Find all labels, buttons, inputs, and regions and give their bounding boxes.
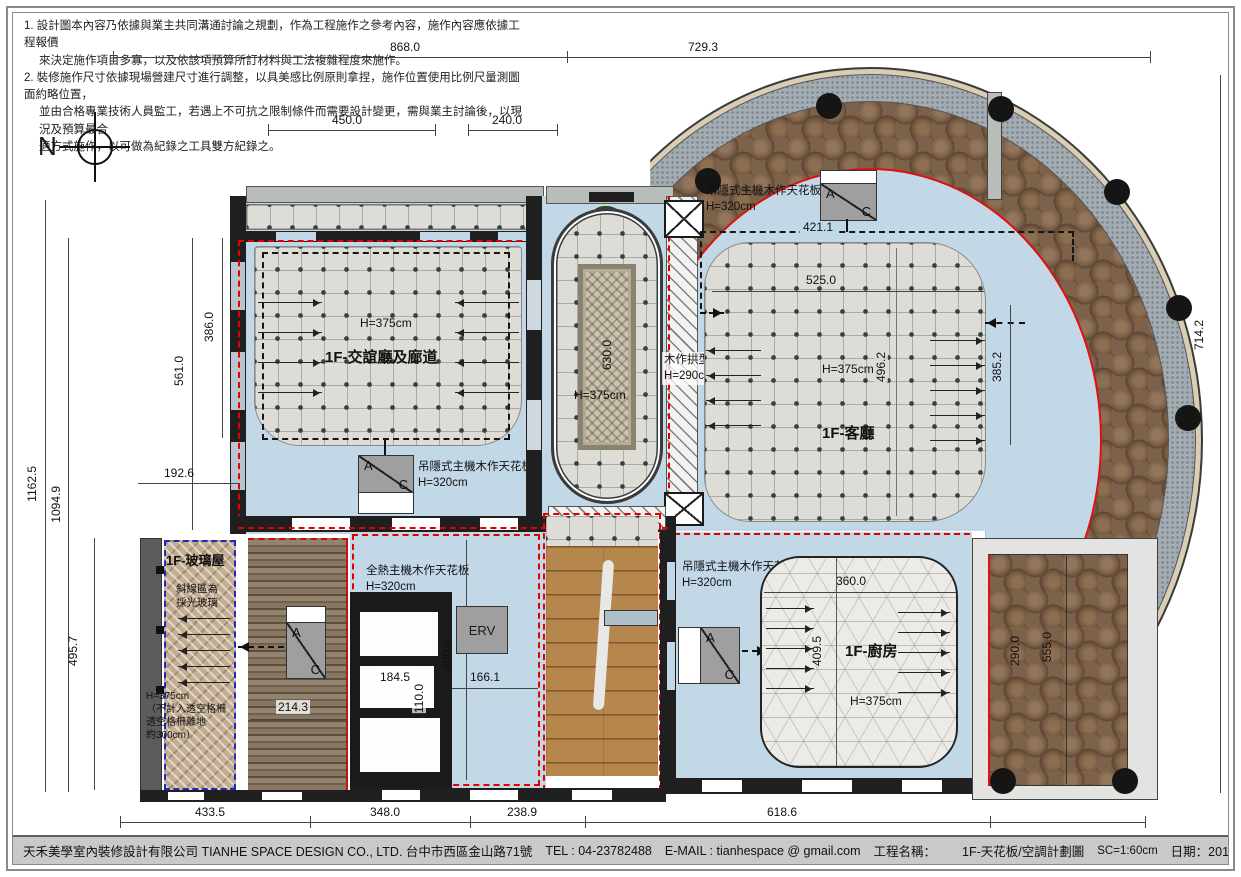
glass-house-name: 1F-玻璃屋	[166, 550, 225, 569]
airflow-arrow	[766, 648, 814, 649]
dimline-1094	[68, 238, 69, 792]
foyer-left-wall	[526, 196, 542, 534]
dim-1094: 1094.9	[49, 486, 63, 523]
airflow-arrow	[898, 692, 950, 693]
ceiling-label: 吊隱式主機木作天花板 H=320cm	[706, 184, 821, 215]
dim-714: 714.2	[1192, 320, 1206, 350]
floor-plan-page: 1. 設計圖本內容乃依據與業主共同溝通討論之規劃，作為工程施作之參考內容，施作內…	[0, 0, 1241, 877]
airflow-arrow	[930, 390, 985, 391]
lounge-ceiling-zone-border	[238, 240, 240, 530]
living-airflow-duct	[1072, 231, 1074, 261]
ac-unit-base	[678, 627, 702, 684]
living-tile-divider	[896, 248, 897, 516]
airflow-arrow	[766, 628, 814, 629]
dim-433: 433.5	[195, 805, 225, 819]
glass-house-room	[164, 540, 236, 790]
airflow-arrow	[178, 666, 230, 667]
dim-500: 500.8	[440, 640, 454, 670]
note-line: 1. 設計圖本內容乃依據與業主共同溝通討論之規劃，作為工程施作之參考內容，施作內…	[24, 18, 529, 53]
dim-166: 166.1	[470, 670, 500, 684]
ac-unit: A C	[358, 455, 414, 494]
airflow-arrow	[258, 302, 322, 303]
dim-tick	[310, 816, 311, 828]
living-room-name: 1F-客廳	[822, 422, 875, 443]
lounge-room-name: 1F-交誼廳及廊道	[325, 346, 438, 367]
round-column	[1112, 768, 1138, 794]
airflow-arrow	[258, 332, 322, 333]
dim-tick	[567, 51, 568, 63]
airflow-arrow	[898, 612, 950, 613]
note-line: 2. 裝修施作尺寸依據現場營建尺寸進行調整，以具美感比例原則拿捏，施作位置使用比…	[24, 70, 529, 105]
round-column	[988, 96, 1014, 122]
dim-496: 496.2	[874, 352, 888, 382]
dimline-495	[94, 538, 95, 790]
lounge-soffit-strip	[246, 204, 544, 230]
small-room-cell	[360, 718, 440, 772]
ac-unit: A C	[820, 183, 877, 221]
dim-729: 729.3	[688, 40, 718, 54]
dim-450: 450.0	[332, 113, 362, 127]
ceiling-label-height: H=320cm	[682, 577, 732, 589]
drawing-title: 1F-天花板/空調計劃圖	[962, 841, 1084, 860]
round-column	[990, 768, 1016, 794]
ceiling-label: 吊隱式主機木作天花板 H=320cm	[418, 460, 533, 491]
window-gap	[382, 790, 420, 800]
glass-hatch-note-1: 斜線區為	[176, 583, 218, 595]
airflow-arrow	[706, 400, 761, 401]
living-tile-ceiling	[704, 242, 986, 522]
airflow-arrow	[178, 650, 230, 651]
ac-unit: A C	[700, 627, 740, 684]
glass-note-3: 約300cm）	[146, 730, 196, 741]
ac-letter-c: C	[862, 204, 871, 219]
column-xbox	[664, 200, 704, 238]
airflow-arrow	[178, 634, 230, 635]
airflow-arrow	[930, 365, 985, 366]
project-name-label: 工程名稱：	[874, 841, 937, 860]
terrace-divider	[1066, 556, 1067, 784]
small-room-cell	[360, 612, 438, 656]
window-gap	[702, 780, 742, 792]
foyer-height-label: H=375cm	[574, 388, 626, 402]
airflow-arrow	[455, 392, 519, 393]
erv-ceiling-label-text: 全熱主機木作天花板	[366, 565, 470, 577]
dim-348: 348.0	[370, 805, 400, 819]
erv-ceiling-label-height: H=320cm	[366, 581, 416, 593]
airflow-arrow	[258, 392, 322, 393]
glass-note-1: （不計入透空格柵	[146, 704, 226, 715]
airflow-arrow	[178, 682, 230, 683]
north-label: N	[38, 131, 57, 162]
dimline-450	[268, 130, 435, 131]
dimline-240	[468, 130, 557, 131]
scale-label: SC=1:60cm	[1097, 845, 1157, 857]
dim-868: 868.0	[390, 40, 420, 54]
window-gap	[262, 792, 302, 800]
ac-letter-c: C	[399, 477, 408, 492]
dim-421: 421.1	[800, 220, 836, 234]
window-gap	[667, 562, 675, 600]
round-column	[1166, 295, 1192, 321]
dim-tick	[990, 816, 991, 828]
airflow-dashed-arrow	[985, 322, 1025, 324]
airflow-arrow	[455, 302, 519, 303]
dim-385: 385.2	[990, 352, 1004, 382]
dim-240: 240.0	[492, 113, 522, 127]
title-bar: 天禾美學室內裝修設計有限公司 TIANHE SPACE DESIGN CO., …	[13, 835, 1228, 864]
dimline-1162	[45, 200, 46, 792]
airflow-arrow	[706, 375, 761, 376]
dimline-714	[1220, 75, 1221, 793]
glass-height: H=375cm	[146, 691, 189, 702]
dimline-top	[113, 57, 1150, 58]
lounge-ceiling-zone-border	[238, 240, 542, 242]
ac-letter-a: A	[292, 625, 301, 640]
dim-290: 290.0	[1008, 636, 1022, 666]
ceiling-label-height: H=320cm	[418, 477, 468, 489]
dim-495: 495.7	[66, 636, 80, 666]
dim-192: 192.6	[164, 466, 194, 480]
window-gap	[470, 790, 518, 800]
glass-note-2: 透空格柵離地	[146, 717, 206, 728]
dim-214: 214.3	[276, 700, 310, 714]
ac-unit: A C	[286, 622, 326, 679]
ac-stem	[846, 219, 848, 232]
dim-1162: 1162.5	[25, 466, 39, 502]
ceiling-label-text: 吊隱式主機木作天花板	[418, 461, 533, 473]
ac-letter-a: A	[706, 630, 715, 645]
window-gap	[802, 780, 852, 792]
dim-tick	[557, 124, 558, 136]
note-line: 並由合格專業技術人員監工，若遇上不可抗之限制條件而需要設計變更，需與業主討論後，…	[39, 104, 529, 139]
glass-house-outer-wall	[140, 538, 162, 792]
window-gap	[527, 280, 541, 330]
airflow-arrow	[930, 340, 985, 341]
dim-tick	[468, 124, 469, 136]
dim-555: 555.0	[1040, 632, 1054, 662]
airflow-arrow	[455, 362, 519, 363]
airflow-arrow	[706, 350, 761, 351]
dimline-214	[250, 719, 346, 720]
airflow-arrow	[930, 415, 985, 416]
airflow-arrow	[898, 652, 950, 653]
dim-tick	[585, 816, 586, 828]
dim-tick	[120, 816, 121, 828]
airflow-arrow	[898, 632, 950, 633]
ac-unit-base	[358, 492, 414, 514]
dim-386: 386.0	[202, 312, 216, 342]
dimline-bottom	[120, 822, 1145, 823]
dim-618: 618.6	[767, 805, 797, 819]
ac-letter-c: C	[311, 662, 320, 677]
dim-238: 238.9	[507, 805, 537, 819]
round-column	[1104, 179, 1130, 205]
airflow-arrow	[766, 608, 814, 609]
ceiling-label-height: H=320cm	[706, 201, 756, 213]
dimline-360	[764, 592, 956, 593]
airflow-arrow	[898, 672, 950, 673]
foyer-top-wall-bar	[589, 192, 634, 202]
phone: TEL : 04-23782488	[545, 844, 652, 858]
lounge-eave	[246, 186, 544, 203]
airflow-dashed-arrow	[238, 646, 284, 648]
dimline-166	[452, 688, 538, 689]
dimline-385	[1010, 305, 1011, 445]
airflow-arrow	[706, 425, 761, 426]
dim-360: 360.0	[836, 574, 866, 588]
airflow-arrow	[930, 440, 985, 441]
kitchen-zone-border	[674, 533, 970, 535]
erv-ceiling-label: 全熱主機木作天花板 H=320cm	[366, 564, 470, 595]
ac-letter-c: C	[725, 667, 734, 682]
dim-tick	[435, 124, 436, 136]
dimline-386	[222, 238, 223, 438]
ac-stem	[384, 440, 386, 455]
airflow-dashed-arrow	[700, 312, 724, 314]
ac-letter-a: A	[364, 458, 373, 473]
airflow-arrow	[455, 332, 519, 333]
dimline-500	[466, 540, 467, 780]
dim-110: 110.0	[412, 684, 426, 713]
dim-184: 184.5	[378, 670, 412, 684]
kitchen-height-label: H=375cm	[850, 694, 902, 708]
window-gap	[168, 792, 204, 800]
airflow-arrow	[766, 668, 814, 669]
date-label: 日期：2018.5.31	[1171, 841, 1228, 860]
glass-height-note: H=375cm （不計入透空格柵 透空格柵離地 約300cm）	[146, 690, 226, 742]
dim-tick	[268, 124, 269, 136]
dim-tick	[470, 816, 471, 828]
airflow-arrow	[766, 688, 814, 689]
dim-630: 630.0	[600, 340, 614, 370]
window-gap	[902, 780, 942, 792]
erv-label: ERV	[469, 623, 496, 638]
dim-tick	[113, 51, 114, 63]
kitchen-room-name: 1F-廚房	[845, 640, 898, 661]
ac-letter-a: A	[826, 186, 835, 201]
window-gap	[667, 642, 675, 690]
dimline-561	[192, 238, 193, 530]
company-name: 天禾美學室內裝修設計有限公司 TIANHE SPACE DESIGN CO., …	[23, 841, 532, 860]
stair-zone-border	[543, 513, 661, 791]
dimline-192	[138, 483, 240, 484]
dim-561: 561.0	[172, 356, 186, 386]
dim-tick	[1150, 51, 1151, 63]
email: E-MAIL : tianhespace @ gmail.com	[665, 844, 861, 858]
glass-hatch-note: 斜線區為 採光玻璃	[176, 582, 218, 610]
living-airflow-duct	[700, 231, 1074, 233]
living-height-label: H=375cm	[822, 362, 874, 376]
window-gap	[527, 400, 541, 450]
lounge-height-label: H=375cm	[360, 316, 412, 330]
door-gap	[572, 790, 612, 800]
airflow-arrow	[258, 362, 322, 363]
dim-525: 525.0	[806, 273, 836, 287]
living-airflow-duct	[700, 231, 702, 309]
airflow-arrow	[178, 618, 230, 619]
kitchen-divider	[836, 558, 837, 766]
dimline-525	[712, 291, 984, 292]
ceiling-label-text: 吊隱式主機木作天花板	[706, 185, 821, 197]
dim-tick	[1145, 816, 1146, 828]
round-column	[816, 93, 842, 119]
round-column	[1175, 405, 1201, 431]
erv-box-wrap: ERV	[456, 606, 508, 654]
terrace-stone	[988, 554, 1128, 786]
glass-hatch-note-2: 採光玻璃	[176, 597, 218, 609]
north-icon-vline	[94, 112, 96, 182]
